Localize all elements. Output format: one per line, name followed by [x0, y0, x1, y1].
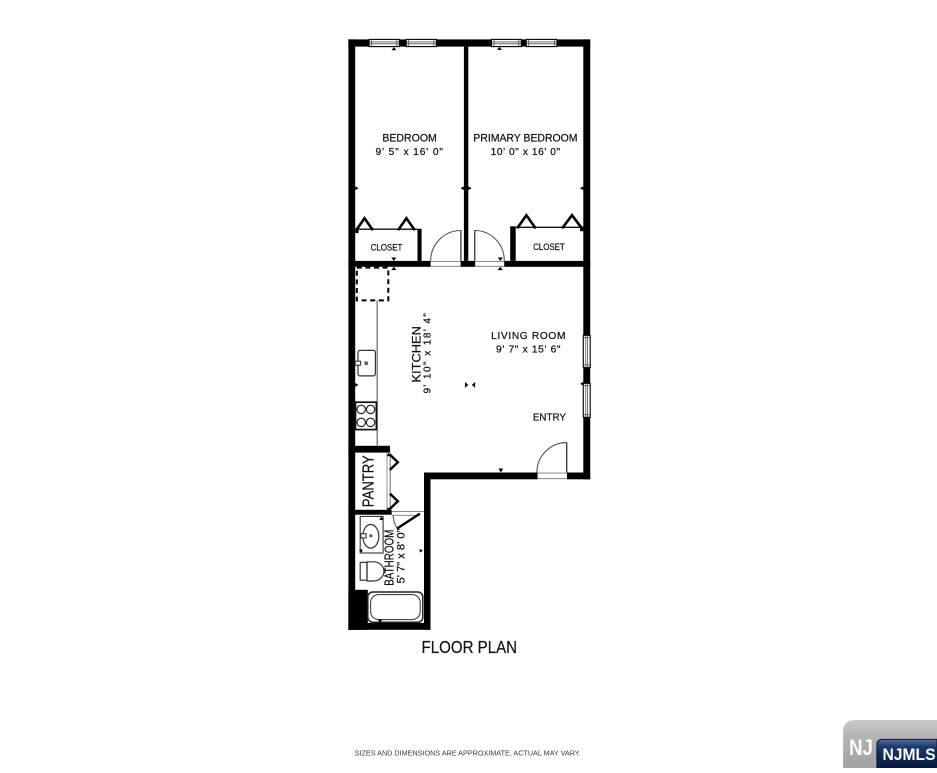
svg-text:CLOSET: CLOSET	[533, 242, 565, 252]
svg-text:PANTRY: PANTRY	[361, 455, 378, 507]
svg-text:SIZES AND DIMENSIONS ARE APPRO: SIZES AND DIMENSIONS ARE APPROXIMATE, AC…	[355, 749, 581, 758]
svg-text:FLOOR PLAN: FLOOR PLAN	[422, 637, 518, 657]
svg-text:BEDROOM: BEDROOM	[382, 132, 436, 144]
svg-text:NJ: NJ	[849, 735, 873, 760]
svg-text:5' 7" x 8' 0": 5' 7" x 8' 0"	[395, 528, 407, 583]
svg-text:9' 5" x 16' 0": 9' 5" x 16' 0"	[376, 147, 444, 158]
svg-text:NJMLS: NJMLS	[883, 746, 936, 764]
svg-text:PRIMARY BEDROOM: PRIMARY BEDROOM	[473, 132, 577, 144]
svg-text:CLOSET: CLOSET	[371, 242, 403, 252]
svg-text:ENTRY: ENTRY	[533, 413, 566, 424]
svg-text:10' 0" x 16' 0": 10' 0" x 16' 0"	[491, 147, 561, 158]
svg-text:9' 10" x 18' 4": 9' 10" x 18' 4"	[422, 313, 433, 394]
svg-text:9' 7" x 15' 6": 9' 7" x 15' 6"	[496, 345, 561, 356]
svg-text:LIVING ROOM: LIVING ROOM	[491, 331, 565, 342]
